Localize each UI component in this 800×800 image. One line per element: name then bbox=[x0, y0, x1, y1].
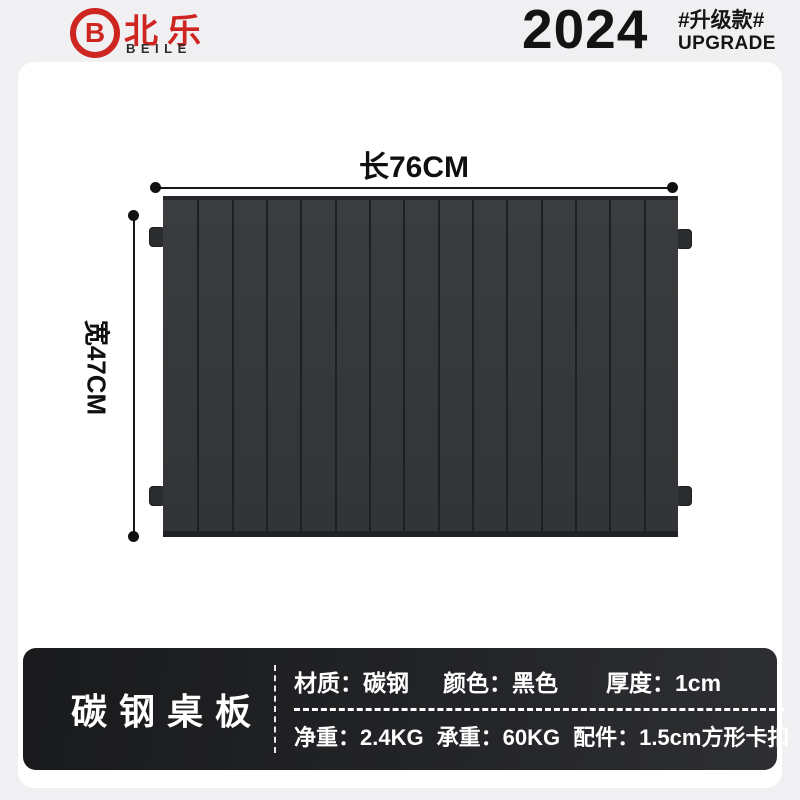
upgrade-badge: #升级款# UPGRADE bbox=[678, 9, 776, 55]
board-slat-divider bbox=[541, 200, 543, 531]
upgrade-badge-chinese: #升级款# bbox=[678, 9, 776, 33]
year-label: 2024 bbox=[522, 0, 648, 58]
clamp-knob-bottom-right bbox=[676, 486, 692, 506]
board-slat-divider bbox=[197, 200, 199, 531]
upgrade-badge-english: UPGRADE bbox=[678, 33, 776, 55]
board-slat-divider bbox=[369, 200, 371, 531]
spec-row-1: 材质：碳钢 颜色：黑色 厚度：1cm bbox=[294, 664, 788, 698]
width-dimension-line bbox=[133, 215, 135, 537]
dimension-endpoint-dot bbox=[667, 182, 678, 193]
product-title: 碳钢桌板 bbox=[53, 648, 269, 770]
length-dimension-label: 长76CM bbox=[314, 142, 514, 186]
board-slat-divider bbox=[506, 200, 508, 531]
spec-accessory: 配件：1.5cm方形卡扣 bbox=[573, 720, 789, 752]
table-board bbox=[163, 196, 678, 537]
board-slat-divider bbox=[575, 200, 577, 531]
board-slat-divider bbox=[232, 200, 234, 531]
board-slat-divider bbox=[300, 200, 302, 531]
length-dimension-line bbox=[155, 187, 673, 189]
spec-thickness: 厚度：1cm bbox=[606, 664, 721, 698]
brand-logo-icon: B bbox=[70, 8, 120, 58]
board-slat-divider bbox=[266, 200, 268, 531]
spec-net-weight: 净重：2.4KG bbox=[294, 720, 424, 752]
spec-material: 材质：碳钢 bbox=[294, 664, 409, 698]
board-slat-divider bbox=[609, 200, 611, 531]
board-slat-divider bbox=[335, 200, 337, 531]
dimension-endpoint-dot bbox=[150, 182, 161, 193]
brand-name-english: BEILE bbox=[126, 41, 192, 56]
spec-load-capacity: 承重：60KG bbox=[437, 720, 560, 752]
horizontal-dashed-divider bbox=[294, 708, 784, 711]
dimension-endpoint-dot bbox=[128, 531, 139, 542]
board-slat-divider bbox=[438, 200, 440, 531]
clamp-knob-top-right bbox=[676, 229, 692, 249]
logo-letter: B bbox=[85, 19, 105, 47]
board-slat-divider bbox=[403, 200, 405, 531]
spec-panel: 材质：碳钢 颜色：黑色 厚度：1cm 净重：2.4KG 承重：60KG 配件：1… bbox=[294, 664, 788, 752]
vertical-dashed-divider bbox=[274, 665, 276, 753]
spec-color: 颜色：黑色 bbox=[443, 664, 558, 698]
product-page: B 北乐 BEILE 2024 #升级款# UPGRADE 长76CM 宽47C… bbox=[0, 0, 800, 800]
dimension-endpoint-dot bbox=[128, 210, 139, 221]
info-bar: 碳钢桌板 材质：碳钢 颜色：黑色 厚度：1cm 净重：2.4KG 承重：60KG… bbox=[23, 648, 777, 770]
board-slat-divider bbox=[472, 200, 474, 531]
spec-row-2: 净重：2.4KG 承重：60KG 配件：1.5cm方形卡扣 bbox=[294, 720, 788, 752]
board-slat-divider bbox=[644, 200, 646, 531]
width-dimension-label: 宽47CM bbox=[90, 311, 117, 425]
